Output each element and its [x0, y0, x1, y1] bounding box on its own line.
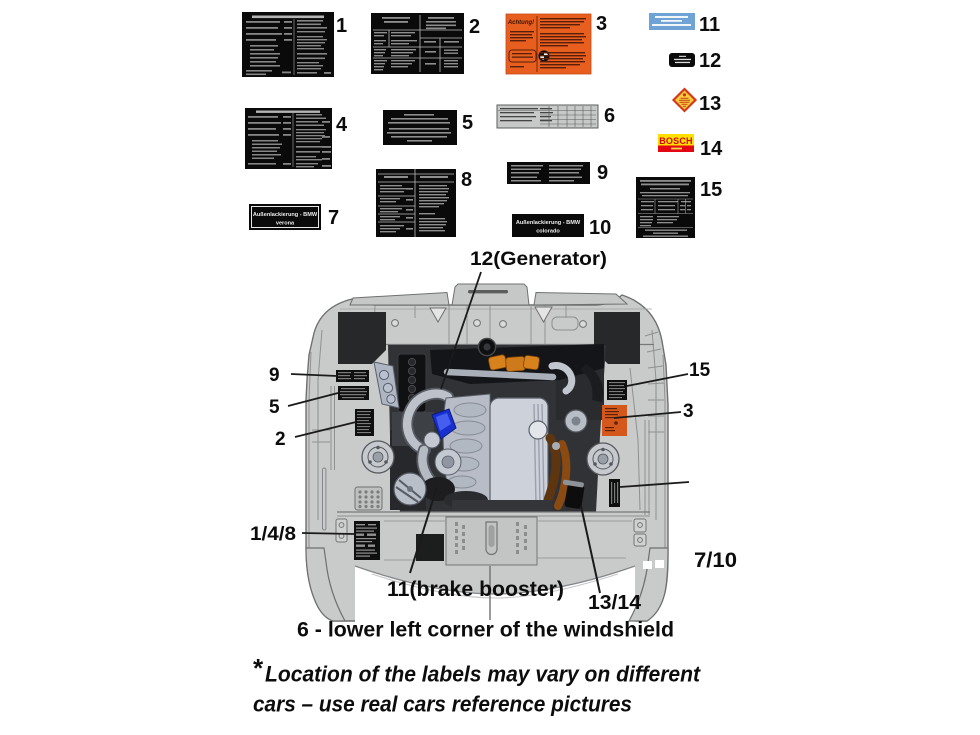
svg-text:9: 9	[597, 162, 608, 184]
svg-text:BOSCH: BOSCH	[659, 136, 693, 146]
svg-text:Location of the labels may var: Location of the labels may vary on diffe…	[265, 662, 702, 687]
svg-text:Achtung!: Achtung!	[507, 20, 534, 26]
svg-text:Außenlackierung - BMW: Außenlackierung - BMW	[253, 212, 318, 218]
svg-text:9: 9	[269, 365, 280, 386]
svg-text:14: 14	[700, 138, 723, 160]
svg-text:10: 10	[589, 217, 611, 239]
svg-text:13: 13	[699, 93, 721, 115]
svg-text:Außenlackierung - BMW: Außenlackierung - BMW	[516, 220, 581, 226]
svg-text:verona: verona	[276, 221, 295, 227]
svg-text:7/10: 7/10	[694, 549, 737, 572]
svg-text:11(brake booster): 11(brake booster)	[387, 578, 564, 601]
svg-text:6 - lower left corner of the w: 6 - lower left corner of the windshield	[297, 619, 674, 642]
svg-text:12(Generator): 12(Generator)	[470, 248, 607, 270]
svg-text:15: 15	[689, 360, 711, 381]
svg-text:7: 7	[328, 207, 339, 229]
svg-text:3: 3	[596, 13, 607, 35]
svg-text:5: 5	[269, 397, 280, 418]
svg-text:5: 5	[462, 112, 473, 134]
svg-text:6: 6	[604, 105, 615, 127]
svg-text:1: 1	[336, 15, 347, 37]
svg-text:13/14: 13/14	[588, 592, 642, 614]
svg-text:3: 3	[683, 401, 694, 422]
svg-text:colorado: colorado	[536, 229, 560, 235]
svg-text:4: 4	[336, 114, 348, 136]
svg-text:12: 12	[699, 50, 721, 72]
svg-text:1/4/8: 1/4/8	[250, 524, 296, 545]
svg-text:2: 2	[469, 16, 480, 38]
svg-text:15: 15	[700, 179, 722, 201]
svg-text:cars – use real cars reference: cars – use real cars reference pictures	[253, 692, 632, 717]
svg-text:8: 8	[461, 169, 472, 191]
svg-text:2: 2	[275, 429, 286, 450]
svg-text:11: 11	[699, 14, 720, 36]
